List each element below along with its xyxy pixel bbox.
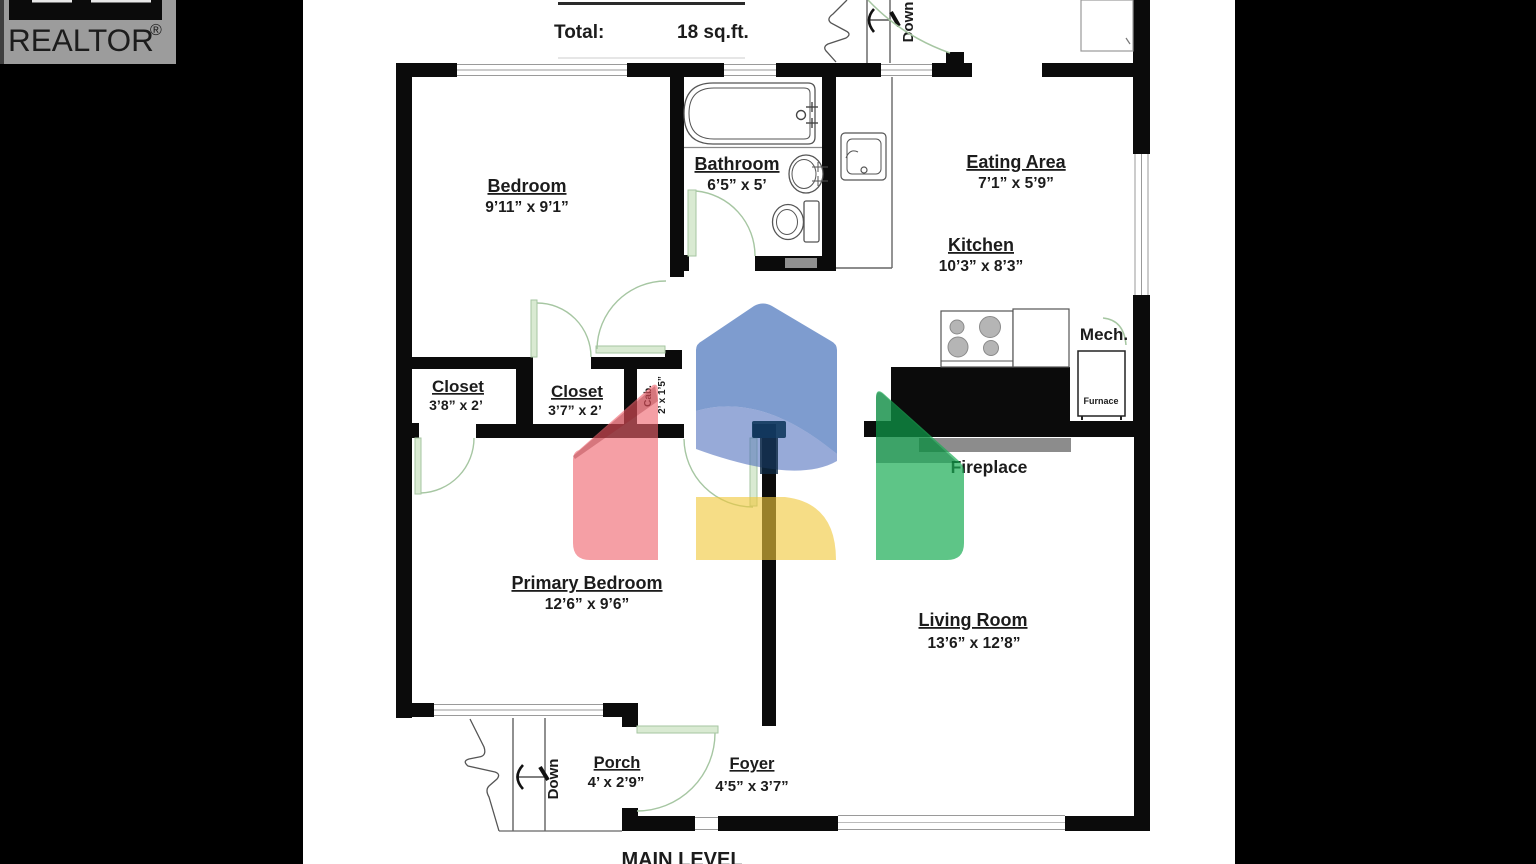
svg-text:9’11” x 9’1”: 9’11” x 9’1” [485, 199, 569, 216]
svg-text:Furnace: Furnace [1083, 396, 1118, 406]
svg-text:2’ x 1’5”: 2’ x 1’5” [657, 376, 668, 414]
svg-text:Mech.: Mech. [1080, 325, 1128, 344]
svg-text:4’5” x 3’7”: 4’5” x 3’7” [715, 778, 788, 795]
svg-text:Closet: Closet [432, 377, 484, 396]
svg-text:Living Room: Living Room [919, 610, 1028, 630]
svg-text:3’8” x 2’: 3’8” x 2’ [429, 397, 483, 413]
svg-text:Eating Area: Eating Area [966, 152, 1066, 172]
svg-text:Down: Down [545, 759, 562, 800]
svg-text:6’5” x 5’: 6’5” x 5’ [707, 177, 766, 194]
svg-text:Total:: Total: [554, 22, 604, 43]
svg-text:Closet: Closet [551, 382, 603, 401]
svg-text:13’6” x 12’8”: 13’6” x 12’8” [927, 635, 1020, 652]
svg-text:18 sq.ft.: 18 sq.ft. [677, 22, 749, 43]
svg-text:Kitchen: Kitchen [948, 235, 1014, 255]
svg-text:4’ x 2’9”: 4’ x 2’9” [588, 774, 645, 791]
svg-text:12’6” x 9’6”: 12’6” x 9’6” [545, 596, 629, 613]
svg-text:Bathroom: Bathroom [695, 154, 780, 174]
svg-text:10’3” x 8’3”: 10’3” x 8’3” [939, 258, 1023, 275]
svg-text:3’7” x 2’: 3’7” x 2’ [548, 402, 602, 418]
svg-text:Bedroom: Bedroom [487, 176, 566, 196]
svg-text:Porch: Porch [594, 754, 641, 772]
svg-text:Foyer: Foyer [730, 755, 776, 773]
svg-text:Primary Bedroom: Primary Bedroom [511, 573, 662, 593]
svg-text:REALTOR: REALTOR [8, 22, 154, 58]
svg-text:®: ® [150, 22, 162, 39]
svg-text:MAIN LEVEL: MAIN LEVEL [621, 849, 742, 864]
svg-text:7’1” x 5’9”: 7’1” x 5’9” [978, 175, 1054, 192]
